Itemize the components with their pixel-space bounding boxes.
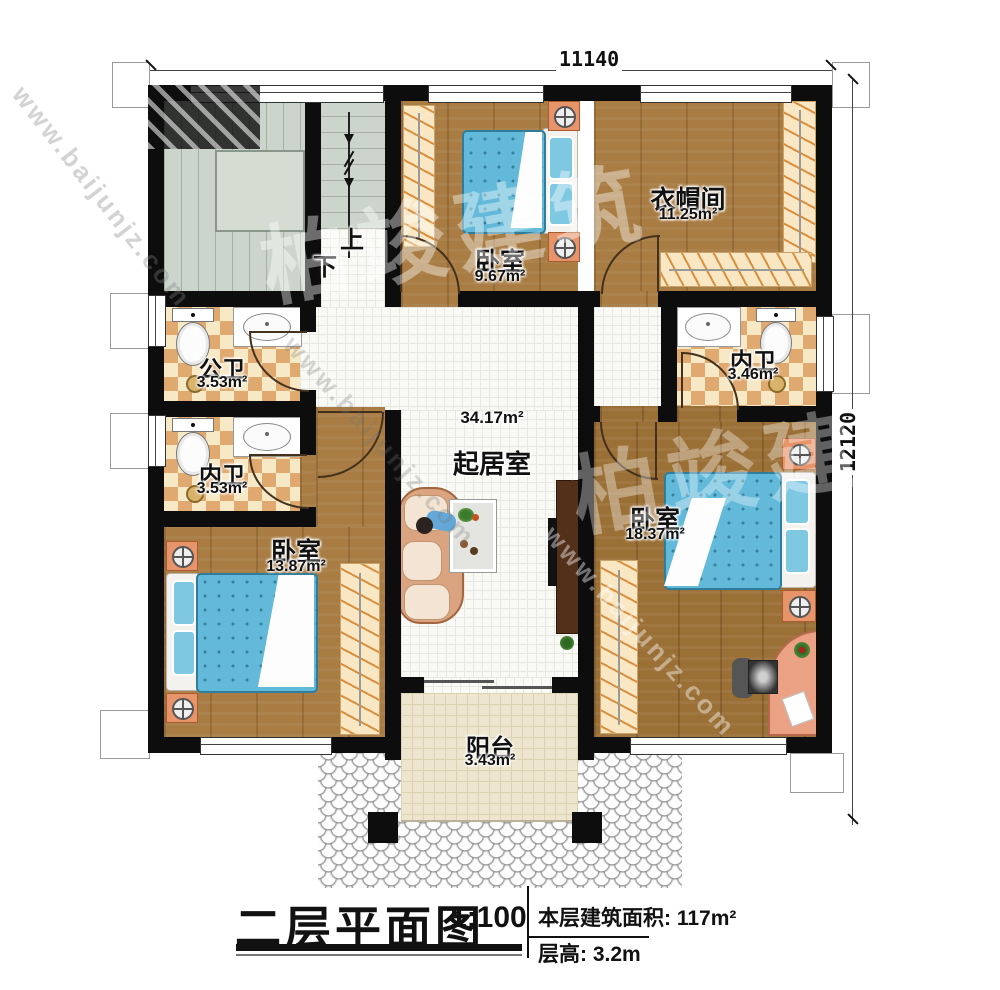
drawing-scale: 1:100 [450, 901, 527, 935]
sliding-door-panel [424, 680, 494, 683]
cloakroom-rack [660, 252, 812, 287]
wall-baths-east [300, 390, 316, 455]
living-floor-upper [300, 307, 578, 410]
stair-arrow-head [344, 134, 354, 144]
room-area-public-bath: 3.53m² [172, 374, 272, 392]
window-sill [832, 314, 870, 394]
nightstand [548, 101, 580, 131]
cloakroom-rack [783, 101, 816, 263]
plant [560, 636, 574, 650]
pillow [548, 182, 574, 226]
wall-east [816, 85, 832, 753]
table-decor [470, 547, 478, 555]
room-area-bedroom-top: 9.67m² [440, 268, 560, 286]
wall-bath-right-west [661, 307, 677, 406]
wall-bedroom-right-west [578, 307, 594, 760]
title-divider [527, 886, 529, 958]
title-underline-thin [236, 954, 522, 956]
title-underline [236, 944, 522, 951]
door-leaf [249, 331, 307, 333]
window [148, 295, 166, 347]
wall-seg [594, 291, 600, 307]
pillow [784, 528, 810, 574]
computer-monitor [748, 660, 778, 694]
sofa-cushion [402, 541, 442, 581]
pillow [548, 136, 574, 180]
table-decor [460, 540, 468, 548]
wardrobe [403, 105, 435, 247]
door-leaf [655, 422, 657, 478]
stair-arrow-head [344, 178, 354, 188]
room-area-inner-bath-right: 3.46m² [703, 366, 803, 384]
living-floor-nook [594, 307, 661, 406]
toilet [756, 308, 796, 322]
window-sill [112, 62, 150, 108]
window [428, 85, 544, 103]
dimension-width-label: 11140 [556, 47, 622, 71]
wall-baths-east [300, 307, 316, 332]
window-sill [832, 62, 870, 108]
wall-living-south [401, 677, 424, 693]
pillow [784, 479, 810, 525]
floor-height-text: 层高: 3.2m [538, 938, 641, 968]
staircase-landing [215, 150, 305, 232]
wall-cloakroom-south [658, 291, 816, 307]
door-leaf [657, 235, 659, 292]
room-area-living: 34.17m² [432, 408, 552, 428]
sliding-door-panel [482, 686, 552, 689]
wall-bedroom-left-north [148, 511, 316, 527]
window [816, 316, 834, 392]
window [200, 737, 332, 755]
tv [548, 518, 557, 586]
wall-seg [594, 406, 600, 422]
room-area-cloakroom: 11.25m² [628, 206, 748, 224]
wall-seg [658, 406, 677, 422]
pillow [172, 630, 196, 676]
wall-living-south [552, 677, 578, 693]
window-sill [110, 413, 150, 469]
dimension-height-label: 12120 [836, 409, 860, 475]
porch-column-right [572, 812, 602, 843]
wardrobe [600, 560, 638, 734]
dimension-tick [847, 813, 858, 824]
nightstand [166, 541, 198, 571]
desk-plant [794, 642, 810, 658]
sink [243, 423, 291, 451]
porch-column-left [368, 812, 398, 843]
window [148, 415, 166, 467]
window [190, 85, 384, 103]
room-area-bedroom-right: 18.37m² [595, 526, 715, 544]
nightstand [166, 693, 198, 723]
floor-area-text: 本层建筑面积: 117m² [538, 902, 736, 932]
dimension-line-top [150, 70, 832, 71]
toilet [172, 308, 214, 322]
door-leaf [400, 235, 402, 292]
nightstand [782, 438, 816, 470]
stair-flight [321, 101, 385, 229]
table-decor [472, 514, 479, 521]
bedroom-right-threshold [600, 406, 658, 422]
door-leaf [681, 352, 683, 408]
wall-baths-mid [148, 401, 316, 417]
room-label-living: 起居室 [428, 444, 556, 481]
room-area-inner-bath-left: 3.53m² [172, 480, 272, 498]
wall-stairs-south [148, 291, 321, 307]
door-leaf [318, 411, 382, 413]
window [640, 85, 792, 103]
wall-bedroom-left-east [385, 410, 401, 760]
room-area-balcony: 3.43m² [430, 752, 550, 770]
sink [685, 313, 731, 341]
sofa-cushion [404, 584, 450, 620]
window-sill [790, 753, 844, 793]
floor-plan-canvas: 上 下 [0, 0, 1000, 990]
wall-seg [385, 291, 401, 307]
person-head [416, 517, 433, 534]
wardrobe [340, 563, 380, 735]
wall-bath-right-south [737, 406, 816, 422]
tv-cabinet [556, 480, 580, 634]
corridor-floor-patch [321, 291, 385, 307]
wall-bedroom-top-west [385, 85, 401, 307]
wall-bedroom-top-south [458, 291, 594, 307]
window [630, 737, 787, 755]
stair-down-label: 下 [305, 247, 345, 282]
pillow [172, 580, 196, 626]
window-sill [100, 710, 150, 759]
nightstand [782, 590, 816, 622]
window-sill [110, 293, 150, 349]
toilet [172, 418, 214, 432]
room-area-bedroom-left: 13.87m² [236, 558, 356, 576]
